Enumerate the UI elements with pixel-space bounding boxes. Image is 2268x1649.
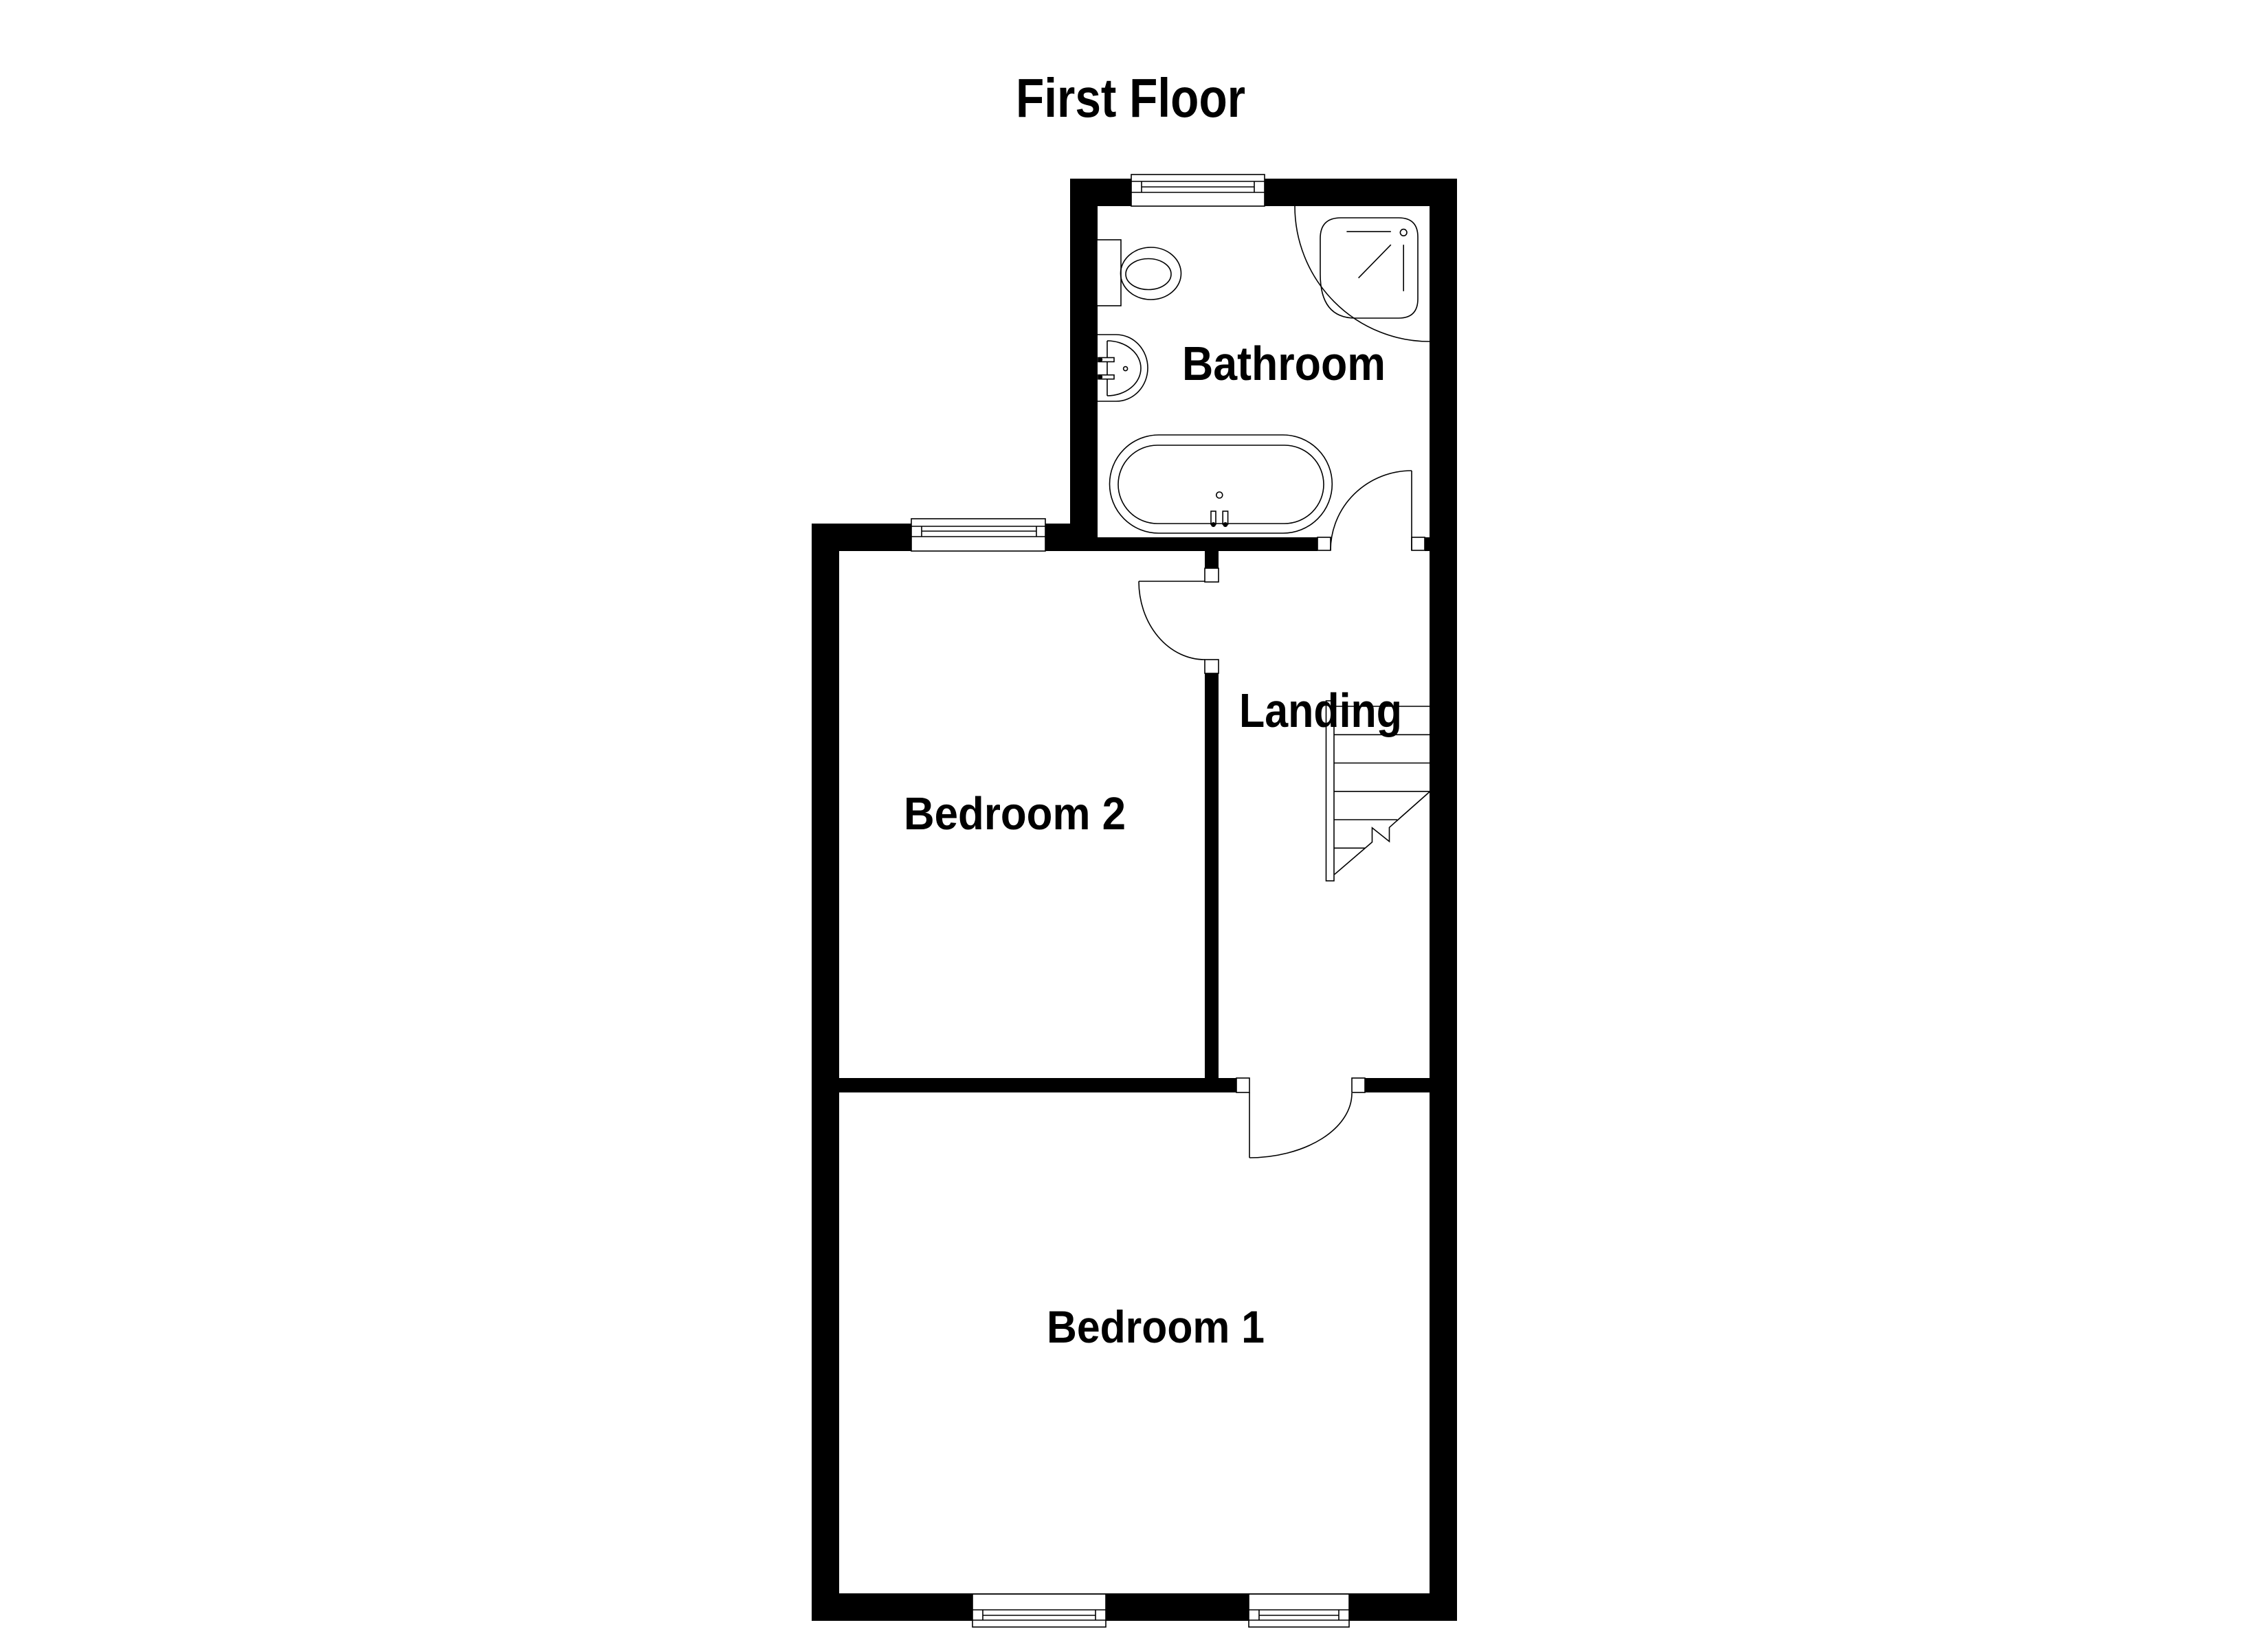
svg-text:Bedroom 1: Bedroom 1 — [1047, 1301, 1265, 1352]
svg-text:Bedroom 2: Bedroom 2 — [904, 788, 1126, 840]
svg-text:First Floor: First Floor — [1016, 67, 1245, 128]
svg-text:Landing: Landing — [1239, 684, 1402, 737]
svg-text:Bathroom: Bathroom — [1182, 337, 1386, 390]
